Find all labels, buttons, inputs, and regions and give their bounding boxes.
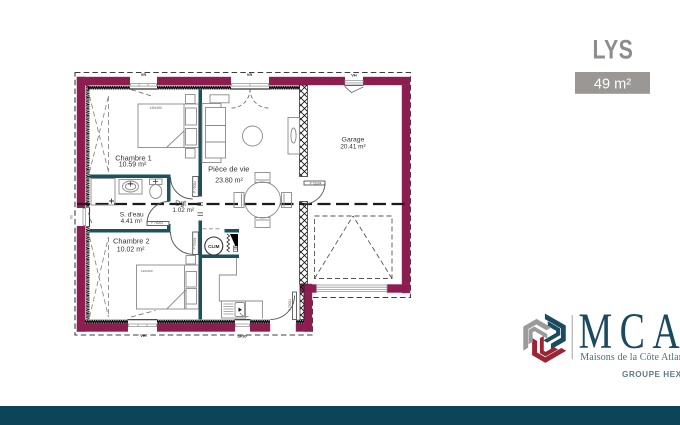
- svg-text:MCA: MCA: [579, 303, 680, 360]
- svg-text:GROUPE HEXAOM: GROUPE HEXAOM: [622, 370, 680, 379]
- svg-text:LYS: LYS: [593, 35, 634, 65]
- svg-text:Maisons de la Côte Atlantique: Maisons de la Côte Atlantique: [580, 352, 680, 363]
- svg-text:49 m²: 49 m²: [594, 76, 631, 92]
